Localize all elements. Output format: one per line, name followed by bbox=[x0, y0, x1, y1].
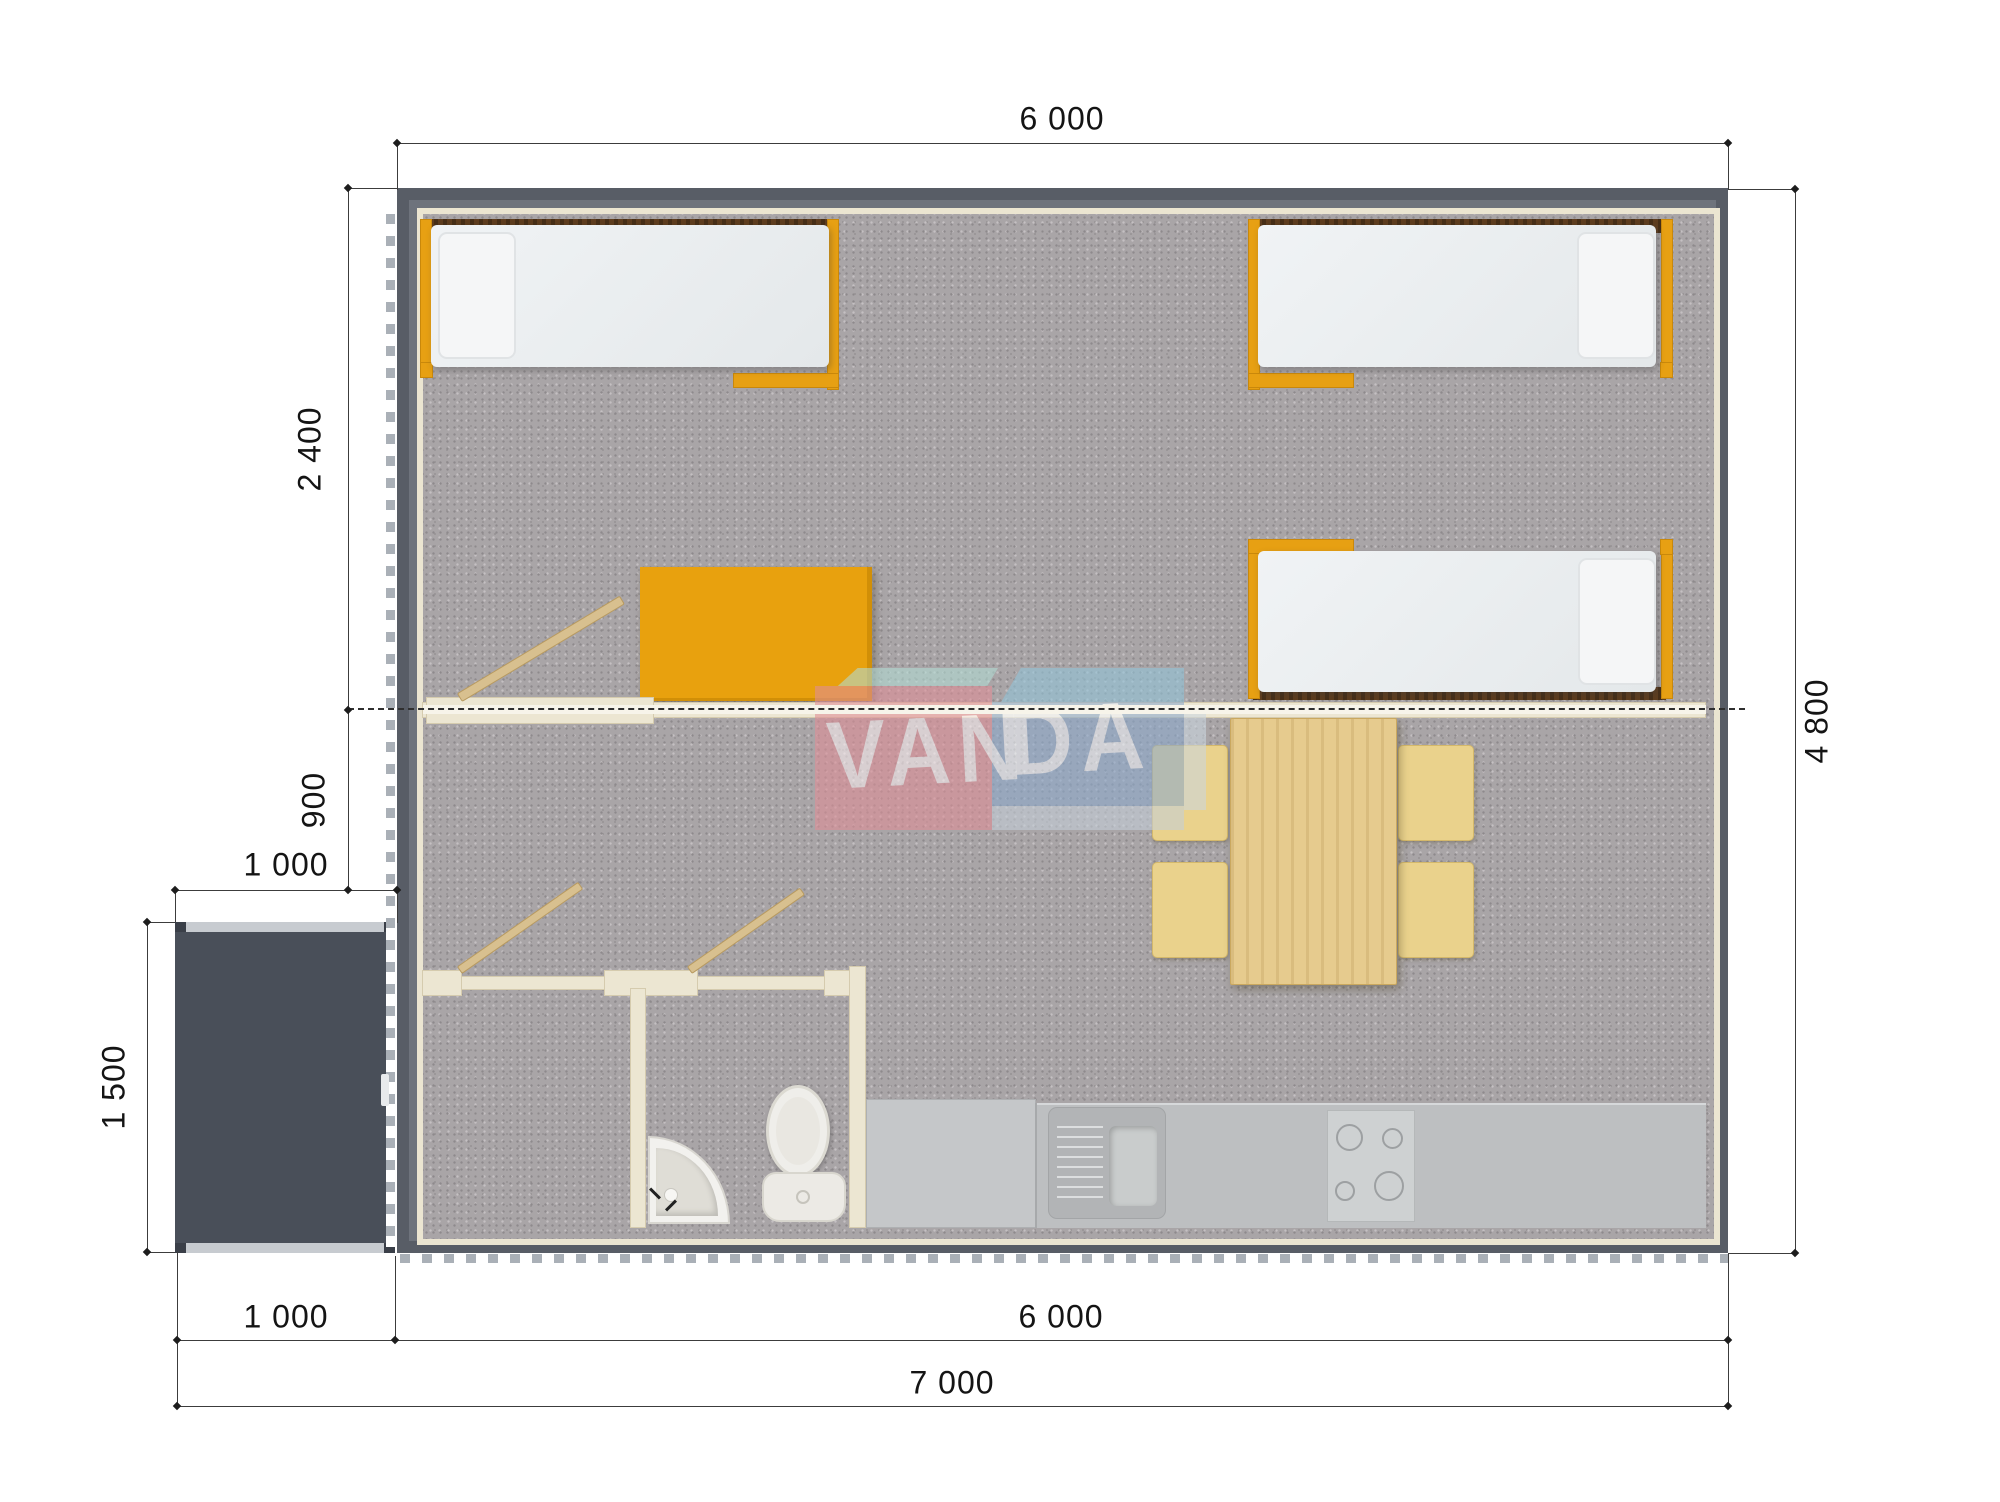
counter-seam bbox=[1035, 1103, 1037, 1228]
vanda-watermark: VAN DA bbox=[800, 650, 1220, 850]
stove-burner bbox=[1382, 1128, 1403, 1149]
dim-bottom-building-width: 6 000 bbox=[1018, 1299, 1103, 1336]
bed2-pillow bbox=[1577, 232, 1655, 359]
toilet-lid bbox=[776, 1097, 820, 1165]
dimension-line bbox=[177, 1406, 1728, 1407]
extension-line bbox=[175, 890, 176, 922]
porch-corner-block bbox=[175, 922, 186, 932]
dimension-line bbox=[175, 890, 397, 891]
dimension-tick bbox=[1791, 185, 1799, 193]
bed1-footboard bbox=[733, 373, 839, 388]
dim-right-height: 4 800 bbox=[1799, 678, 1836, 763]
dim-porch-width-top: 1 000 bbox=[243, 847, 328, 884]
toilet-flush-button bbox=[796, 1190, 810, 1204]
dimension-tick bbox=[173, 1402, 181, 1410]
dining-table bbox=[1230, 718, 1397, 985]
dim-bottom-total-width: 7 000 bbox=[909, 1365, 994, 1402]
dimension-tick bbox=[344, 886, 352, 894]
kitchen-sink-drainboard bbox=[1057, 1126, 1103, 1206]
extension-line bbox=[177, 1252, 178, 1406]
dimension-tick bbox=[1724, 1336, 1732, 1344]
porch-threshold-top bbox=[184, 922, 386, 932]
extension-line bbox=[397, 890, 398, 923]
dimension-tick bbox=[1724, 139, 1732, 147]
dining-chair bbox=[1398, 862, 1474, 958]
extension-line bbox=[147, 1252, 175, 1253]
dimension-tick bbox=[391, 1336, 399, 1344]
watermark-text-right: DA bbox=[1006, 681, 1154, 798]
bed3-pillow bbox=[1578, 558, 1656, 685]
watermark-blue-bottom-band bbox=[992, 806, 1184, 830]
dining-chair bbox=[1398, 745, 1474, 841]
watermark-right-strip bbox=[1184, 714, 1206, 810]
porch-threshold-bottom bbox=[184, 1243, 386, 1253]
kitchen-appliance-block bbox=[866, 1099, 1036, 1228]
extension-line bbox=[147, 922, 175, 923]
bed3-frame-right bbox=[1661, 553, 1673, 699]
dimension-tick bbox=[171, 886, 179, 894]
dimension-line bbox=[147, 922, 148, 1252]
bed2-footboard bbox=[1248, 373, 1354, 388]
dining-chair bbox=[1152, 862, 1228, 958]
bed1-corner-post bbox=[420, 362, 433, 378]
extension-line bbox=[1728, 1253, 1729, 1406]
bathroom-wall-jamb bbox=[422, 970, 462, 996]
dimension-tick bbox=[393, 139, 401, 147]
partition-centerline bbox=[348, 708, 1745, 710]
stove-burner bbox=[1374, 1171, 1404, 1201]
dimension-tick bbox=[173, 1336, 181, 1344]
dimension-line bbox=[348, 188, 349, 710]
extension-line bbox=[348, 188, 397, 189]
stove-burner bbox=[1335, 1181, 1355, 1201]
dim-top-width: 6 000 bbox=[1019, 101, 1104, 138]
dimension-line bbox=[1795, 189, 1796, 1253]
dimension-line bbox=[348, 710, 349, 890]
dimension-line bbox=[177, 1340, 1728, 1341]
bottom-wall-dashed-marking bbox=[400, 1254, 1728, 1263]
dimension-tick bbox=[1724, 1402, 1732, 1410]
bathroom-wall-middle bbox=[630, 988, 646, 1228]
extension-line bbox=[1728, 1253, 1795, 1254]
dimension-tick bbox=[143, 1248, 151, 1256]
dimension-tick bbox=[143, 918, 151, 926]
dim-porch-depth: 1 500 bbox=[96, 1044, 133, 1129]
bathroom-wall-jamb bbox=[604, 970, 698, 996]
bed2-corner-post bbox=[1660, 362, 1673, 378]
dim-left-room-depth: 2 400 bbox=[292, 406, 329, 491]
bed3-corner-post bbox=[1660, 539, 1673, 555]
dim-left-hall-depth: 900 bbox=[296, 772, 333, 828]
extension-line bbox=[397, 143, 398, 190]
kitchen-sink-bowl bbox=[1109, 1126, 1157, 1206]
dimension-tick bbox=[344, 184, 352, 192]
bed2-frame-right bbox=[1661, 219, 1673, 372]
entry-door-handle bbox=[381, 1074, 389, 1106]
dimension-line bbox=[397, 143, 1728, 144]
extension-line bbox=[395, 1256, 396, 1340]
stove-burner bbox=[1336, 1124, 1363, 1151]
floor-plan: VAN DA 6 000 4 800 2 400 900 1 000 1 500… bbox=[0, 0, 2000, 1502]
extension-line bbox=[1728, 143, 1729, 190]
porch-deck bbox=[175, 922, 395, 1253]
bed1-pillow bbox=[438, 232, 516, 359]
dim-bottom-porch-width: 1 000 bbox=[243, 1299, 328, 1336]
extension-line bbox=[1728, 189, 1795, 190]
bathroom-wall-right bbox=[849, 966, 866, 1228]
dimension-tick bbox=[1791, 1249, 1799, 1257]
